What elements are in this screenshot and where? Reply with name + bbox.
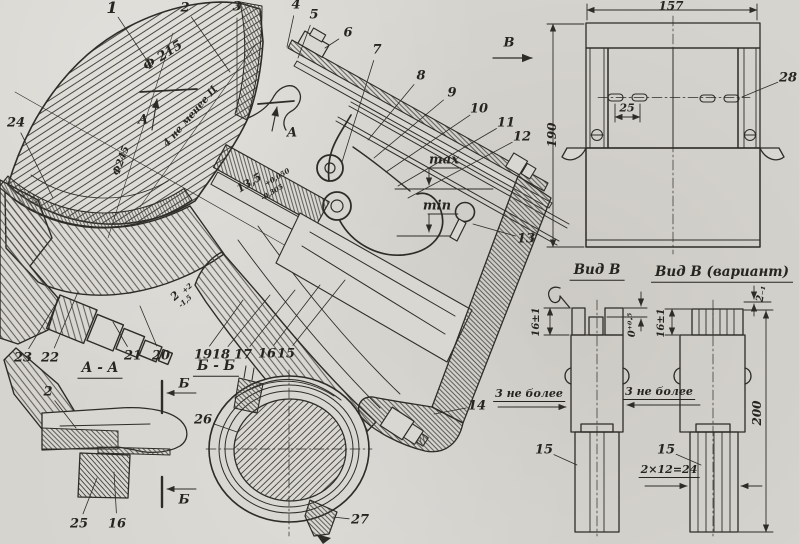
leader-line (274, 285, 320, 345)
tab-right (605, 308, 623, 335)
drawing-canvas (0, 0, 799, 544)
ear-left (565, 368, 571, 384)
horn-core (234, 399, 346, 501)
ribbed-cap (692, 309, 743, 335)
dimension-lines (493, 4, 773, 532)
mount-studs (244, 366, 254, 380)
right-rail (738, 48, 760, 148)
cover-sheet (294, 61, 552, 208)
section-b-b (206, 366, 372, 544)
view-v (549, 287, 629, 536)
left-foot (562, 148, 586, 160)
tab-mid (589, 317, 603, 335)
carb-body (276, 213, 472, 362)
support-block (78, 453, 130, 498)
body (680, 335, 745, 432)
drawing-sheet: { "drawing": { "description": "Sectional… (0, 0, 799, 544)
cap-ribs (699, 309, 734, 335)
leader-line (293, 280, 345, 345)
center-lines (598, 16, 750, 254)
level-plug (450, 203, 475, 242)
ear-right (623, 368, 629, 384)
tab-left (572, 308, 585, 335)
view-v-variant (674, 300, 751, 536)
leader-line (676, 454, 701, 465)
radius-curl (549, 287, 570, 308)
ear-right (745, 368, 751, 384)
left-rail (586, 48, 608, 148)
leader-line (554, 455, 577, 465)
ear-left (674, 368, 680, 384)
front-view (562, 16, 784, 254)
lid-section-band (42, 428, 118, 449)
right-foot (760, 148, 784, 160)
drain-bolt-stack (47, 295, 177, 376)
spout-tip (316, 534, 331, 544)
rod-ribs (698, 432, 730, 532)
